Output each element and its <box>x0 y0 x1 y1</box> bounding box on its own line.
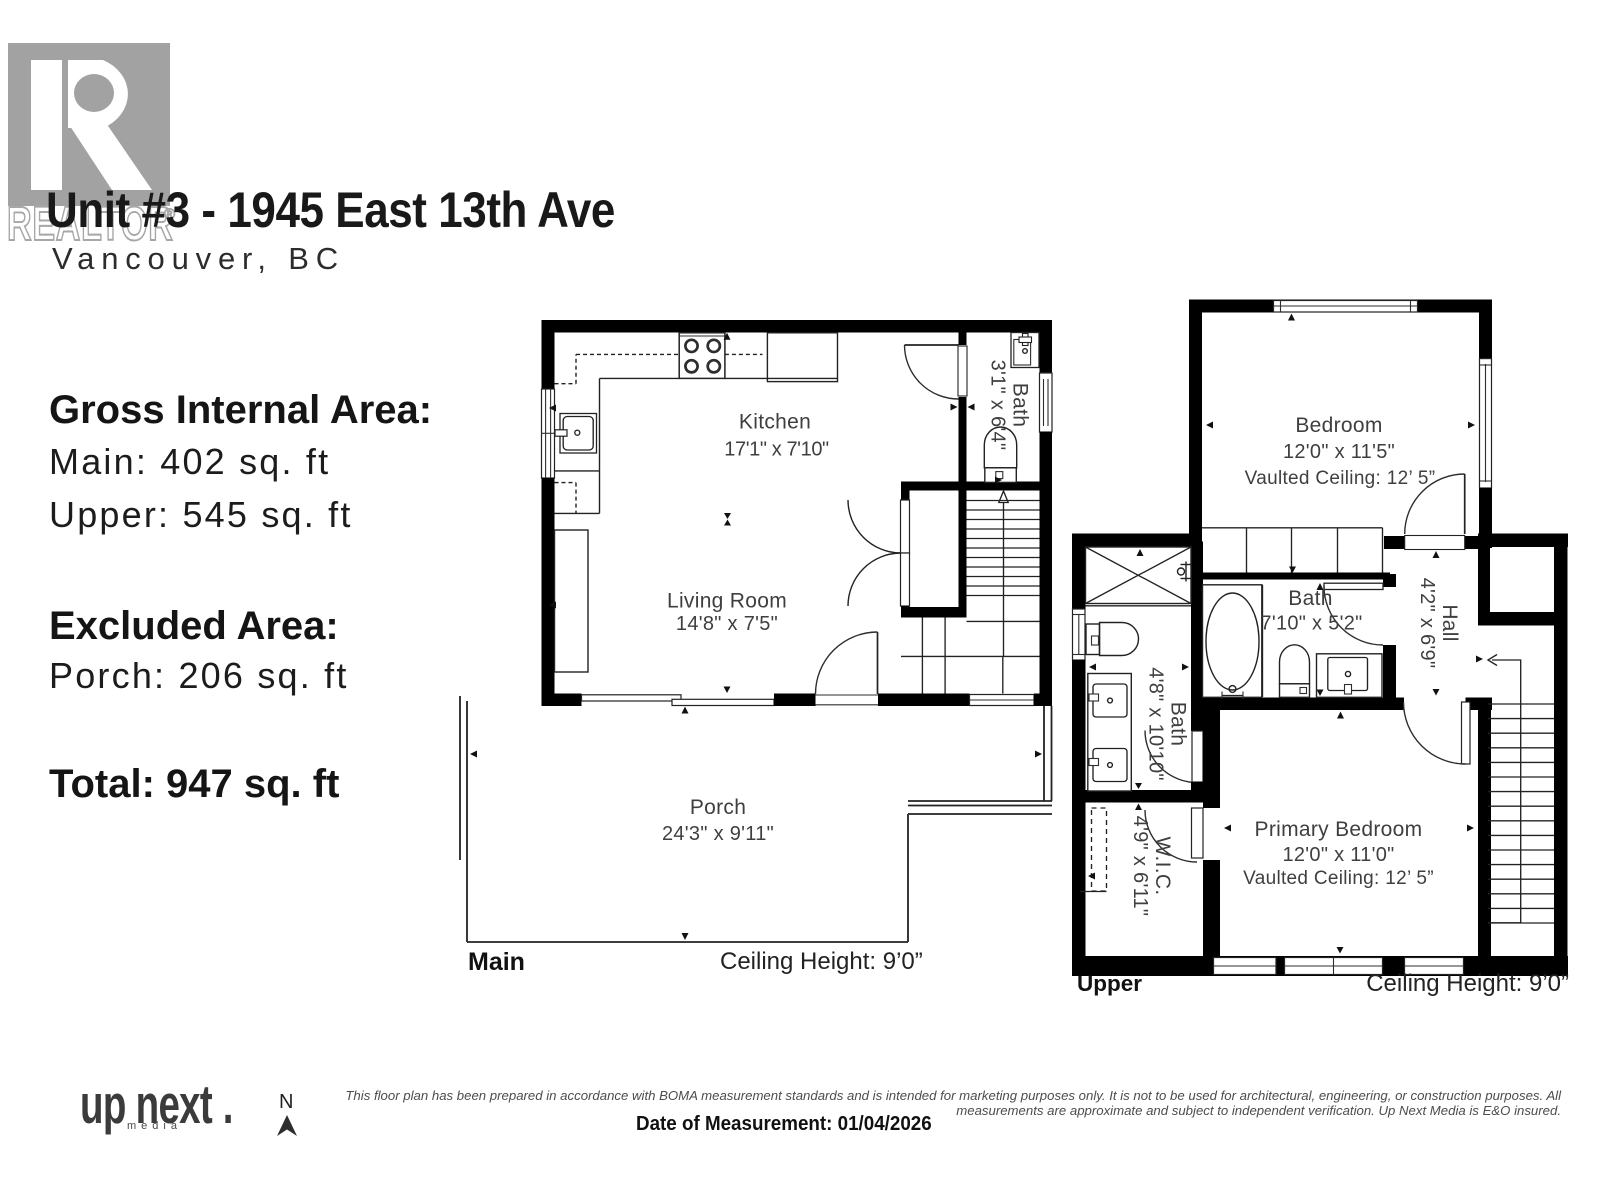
svg-text:14'8" x 7'5": 14'8" x 7'5" <box>676 613 778 635</box>
svg-text:W.I.C.: W.I.C. <box>1151 837 1174 896</box>
svg-text:17'1" x 7'10": 17'1" x 7'10" <box>724 438 829 460</box>
svg-text:4'8" x 10'10": 4'8" x 10'10" <box>1145 667 1167 781</box>
svg-text:Kitchen: Kitchen <box>739 411 811 434</box>
svg-text:7'10" x 5'2": 7'10" x 5'2" <box>1260 613 1362 635</box>
svg-text:Living Room: Living Room <box>667 590 787 613</box>
svg-text:Vaulted Ceiling: 12’ 5”: Vaulted Ceiling: 12’ 5” <box>1245 468 1436 489</box>
svg-text:Bedroom: Bedroom <box>1295 414 1382 437</box>
svg-text:12'0" x 11'5": 12'0" x 11'5" <box>1283 441 1395 463</box>
svg-text:12'0" x 11'0": 12'0" x 11'0" <box>1282 844 1394 866</box>
svg-text:Ceiling Height: 9’0”: Ceiling Height: 9’0” <box>720 948 923 975</box>
svg-text:4'2" x 6'9": 4'2" x 6'9" <box>1416 578 1438 669</box>
svg-text:Vaulted Ceiling: 12’ 5”: Vaulted Ceiling: 12’ 5” <box>1243 868 1434 889</box>
svg-text:Main: Main <box>468 948 525 976</box>
svg-text:Bath: Bath <box>1008 383 1031 427</box>
svg-text:Hall: Hall <box>1438 604 1461 641</box>
svg-text:4'9" x 6'11": 4'9" x 6'11" <box>1129 816 1151 917</box>
svg-text:Bath: Bath <box>1167 702 1190 746</box>
svg-text:Ceiling Height: 9’0”: Ceiling Height: 9’0” <box>1366 970 1569 997</box>
svg-text:Bath: Bath <box>1288 587 1332 610</box>
svg-text:Primary Bedroom: Primary Bedroom <box>1255 818 1423 841</box>
svg-text:Porch: Porch <box>690 796 746 819</box>
svg-text:3'1" x 6'4": 3'1" x 6'4" <box>986 360 1008 451</box>
svg-text:Upper: Upper <box>1077 971 1142 996</box>
svg-text:24'3" x 9'11": 24'3" x 9'11" <box>662 823 774 845</box>
